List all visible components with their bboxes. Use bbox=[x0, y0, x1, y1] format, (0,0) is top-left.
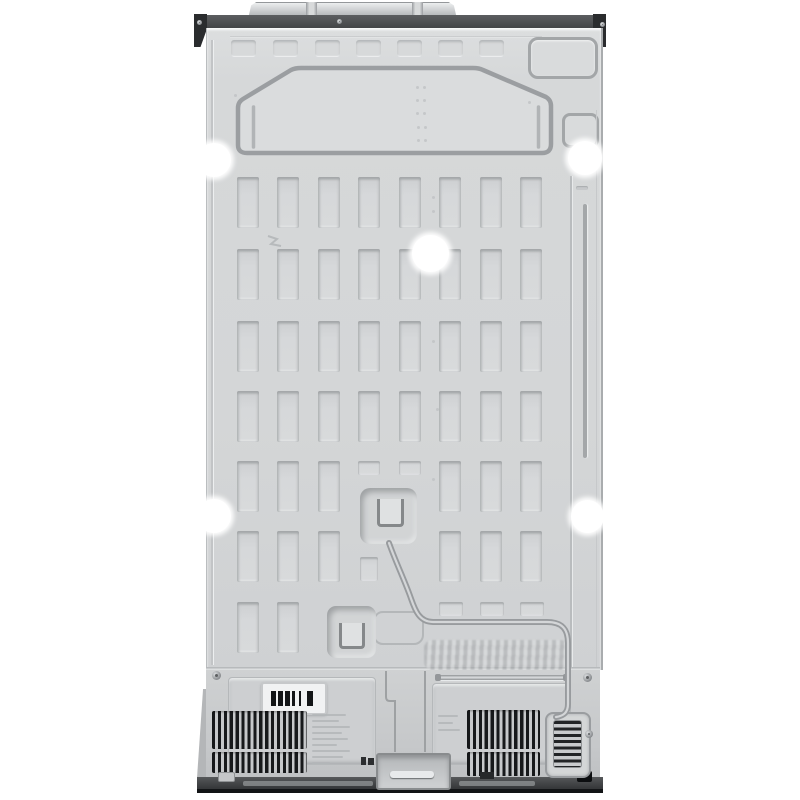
spot-weld-dot bbox=[234, 94, 237, 97]
stiffener-slot bbox=[480, 461, 502, 512]
rod-cap bbox=[435, 674, 441, 681]
stiffener-slot bbox=[439, 391, 461, 442]
stiffener-slot bbox=[520, 321, 542, 372]
stiffener-slot bbox=[318, 531, 340, 582]
top-emboss-square bbox=[397, 40, 422, 57]
right-edge-line bbox=[596, 110, 597, 668]
top-emboss-square bbox=[231, 40, 256, 57]
vent-grille-right-upper bbox=[467, 710, 540, 749]
spec-label bbox=[312, 712, 354, 770]
stiffener-slot bbox=[237, 531, 259, 582]
valve-bracket-lower bbox=[339, 623, 365, 649]
stiffener-slot bbox=[520, 461, 542, 512]
screw bbox=[585, 730, 593, 738]
access-panel-outline bbox=[528, 37, 598, 79]
base-slot bbox=[459, 781, 535, 786]
stiffener-slot bbox=[520, 391, 542, 442]
mounting-hole bbox=[571, 500, 604, 533]
center-mounting-bracket bbox=[376, 753, 451, 790]
spot-weld-dot bbox=[417, 126, 420, 129]
spec-text-line bbox=[312, 726, 350, 728]
top-emboss-square bbox=[273, 40, 298, 57]
stiffener-slot bbox=[520, 177, 542, 228]
rod-cap bbox=[563, 674, 569, 681]
mounting-hole bbox=[568, 141, 602, 175]
stiffener-slot bbox=[318, 249, 340, 300]
stiffener-slot bbox=[358, 321, 380, 372]
right-channel-tick bbox=[576, 186, 588, 190]
vent-grille-right-lower bbox=[467, 752, 540, 776]
spec-text-line bbox=[312, 756, 343, 758]
stiffener-slot bbox=[358, 177, 380, 228]
spec-text-line bbox=[312, 744, 337, 746]
leveling-foot-clip bbox=[218, 772, 235, 782]
spot-weld-dot bbox=[436, 408, 439, 411]
spot-weld-dot bbox=[424, 139, 427, 142]
serial-bar bbox=[278, 691, 283, 706]
clip-mark bbox=[368, 758, 374, 765]
stiffener-slot-short bbox=[358, 461, 380, 475]
serial-bar bbox=[299, 691, 301, 706]
screw bbox=[583, 673, 592, 682]
stiffener-slot bbox=[277, 321, 299, 372]
stiffener-slot bbox=[277, 391, 299, 442]
spot-weld-dot bbox=[416, 99, 419, 102]
serial-bar bbox=[307, 691, 313, 706]
stiffener-slot bbox=[277, 461, 299, 512]
stiffener-slot bbox=[237, 177, 259, 228]
bracket-slot bbox=[390, 771, 434, 778]
stiffener-slot bbox=[480, 177, 502, 228]
spot-weld-dot bbox=[528, 101, 531, 104]
stiffener-slot-short bbox=[520, 602, 544, 616]
stiffener-slot bbox=[439, 531, 461, 582]
stiffener-slot bbox=[399, 391, 421, 442]
stiffener-slot bbox=[318, 177, 340, 228]
stiffener-slot bbox=[318, 391, 340, 442]
spot-weld-dot bbox=[423, 99, 426, 102]
top-emboss-square bbox=[438, 40, 463, 57]
vent-grille-left-upper bbox=[212, 711, 307, 749]
spec-text-line bbox=[312, 738, 348, 740]
cross-rod bbox=[437, 675, 568, 680]
spec-text-line bbox=[312, 762, 330, 764]
left-edge-channel bbox=[211, 40, 213, 665]
clip-mark bbox=[361, 757, 366, 765]
mounting-hole bbox=[197, 499, 231, 533]
stiffener-slot bbox=[480, 249, 502, 300]
screw bbox=[212, 671, 221, 680]
stiffener-slot bbox=[358, 249, 380, 300]
spec-text-line bbox=[438, 729, 460, 731]
stiffener-slot-short bbox=[360, 557, 378, 581]
spot-weld-dot bbox=[432, 340, 435, 343]
spot-weld-dot bbox=[416, 112, 419, 115]
stiffener-slot bbox=[237, 602, 259, 653]
serial-bar bbox=[292, 691, 295, 706]
base-clip bbox=[480, 772, 494, 779]
panel-hairline bbox=[230, 36, 542, 38]
spec-label-small bbox=[438, 712, 464, 742]
spec-text-line bbox=[312, 750, 350, 752]
right-edge-channel bbox=[570, 176, 572, 668]
spec-text-line bbox=[312, 720, 339, 722]
top-emboss-square bbox=[479, 40, 504, 57]
stiffener-slot bbox=[399, 321, 421, 372]
stiffener-slot bbox=[439, 321, 461, 372]
stiffener-slot bbox=[277, 249, 299, 300]
spot-weld-dot bbox=[432, 196, 435, 199]
stiffener-slot bbox=[480, 391, 502, 442]
stiffener-slot bbox=[277, 177, 299, 228]
spot-weld-dot bbox=[424, 126, 427, 129]
stiffener-slot bbox=[318, 461, 340, 512]
screw bbox=[197, 20, 202, 25]
stiffener-slot bbox=[439, 177, 461, 228]
stiffener-slot bbox=[439, 461, 461, 512]
stamped-serial-emboss bbox=[424, 640, 568, 670]
mounting-hole bbox=[197, 143, 231, 177]
stiffener-slot bbox=[358, 391, 380, 442]
spot-weld-dot bbox=[432, 478, 435, 481]
spot-weld-dot bbox=[423, 86, 426, 89]
stiffener-slot bbox=[318, 321, 340, 372]
stiffener-slot bbox=[480, 531, 502, 582]
stiffener-slot bbox=[480, 321, 502, 372]
stiffener-slot bbox=[237, 321, 259, 372]
serial-bar bbox=[285, 691, 290, 706]
base-slot bbox=[243, 781, 373, 786]
vent-grille-left-lower bbox=[212, 752, 307, 773]
spot-weld-dot bbox=[416, 86, 419, 89]
spec-text-line bbox=[312, 714, 346, 716]
stiffener-slot bbox=[520, 531, 542, 582]
spot-weld-dot bbox=[432, 210, 435, 213]
stiffener-slot bbox=[277, 531, 299, 582]
spec-text-line bbox=[312, 732, 342, 734]
stiffener-slot bbox=[399, 177, 421, 228]
valve-bracket-upper bbox=[377, 499, 404, 527]
top-emboss-square bbox=[315, 40, 340, 57]
product-photo-fridge-back bbox=[0, 0, 800, 800]
stiffener-slot bbox=[237, 249, 259, 300]
screw bbox=[600, 22, 605, 27]
drain-grille-slats bbox=[553, 720, 582, 768]
spot-weld-dot bbox=[417, 139, 420, 142]
stiffener-slot bbox=[237, 391, 259, 442]
stiffener-slot-short bbox=[439, 602, 463, 616]
spec-text-line bbox=[438, 715, 458, 717]
stiffener-slot bbox=[277, 602, 299, 653]
right-channel-tube bbox=[583, 204, 587, 458]
spec-text-line bbox=[438, 722, 453, 724]
screw bbox=[337, 19, 342, 24]
mounting-hole bbox=[412, 235, 449, 272]
stiffener-slot-short bbox=[399, 461, 421, 475]
serial-bar bbox=[271, 691, 276, 706]
stiffener-slot-short bbox=[480, 602, 504, 616]
top-emboss-square bbox=[356, 40, 381, 57]
stiffener-slot bbox=[520, 249, 542, 300]
spot-weld-dot bbox=[423, 112, 426, 115]
stiffener-slot bbox=[237, 461, 259, 512]
drain-grille-plate bbox=[545, 712, 591, 778]
